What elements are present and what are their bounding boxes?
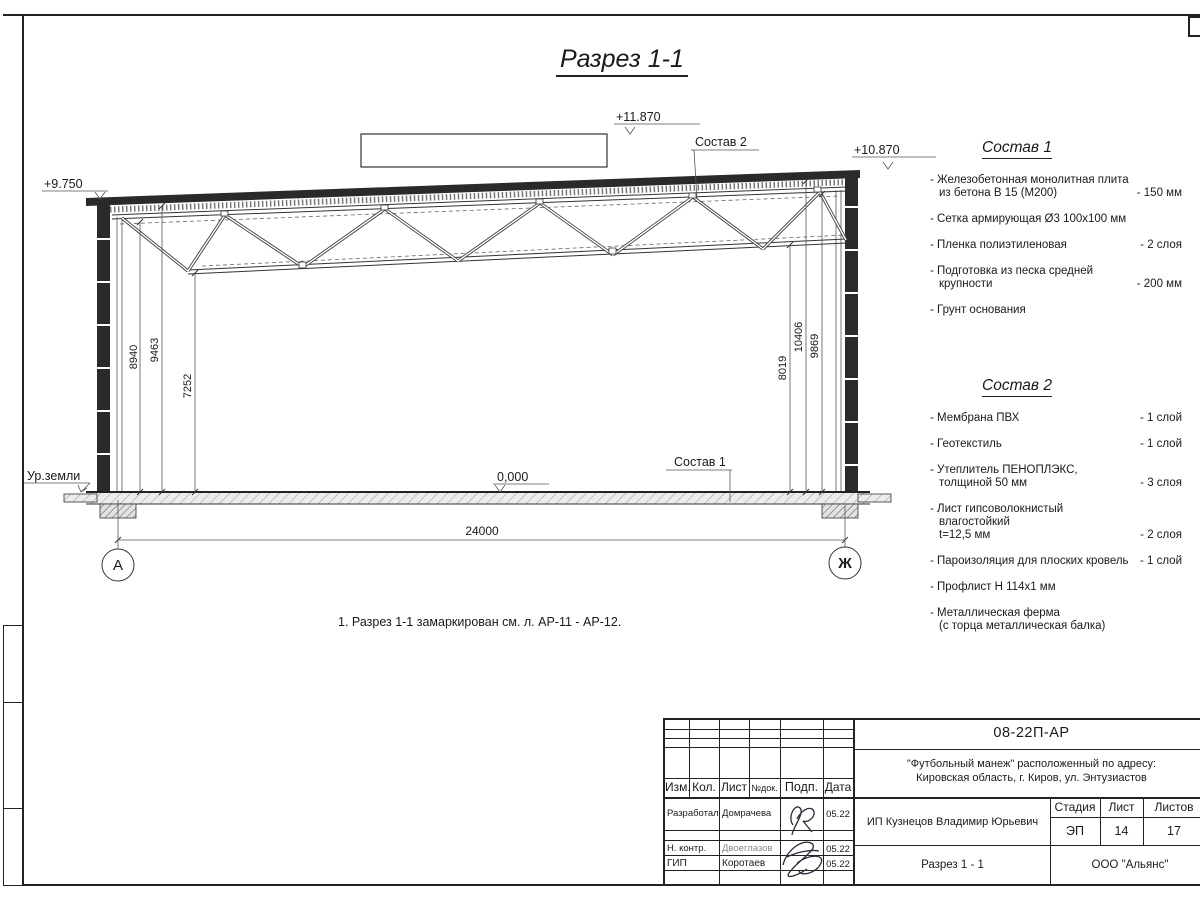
sostav2-item: - Металлическая ферма (с торца металличе… — [930, 607, 1182, 633]
tb-client: ИП Кузнецов Владимир Юрьевич — [855, 798, 1050, 845]
ground-level: Ур.земли — [24, 469, 90, 492]
tb-sheets-value: 17 — [1143, 824, 1200, 838]
tb-company: ООО "Альянс" — [1050, 846, 1200, 883]
tb-col-ndok: №док. — [749, 783, 780, 793]
tb-sheets-label: Листов — [1143, 800, 1200, 814]
drawing-note: 1. Разрез 1-1 замаркирован см. л. АР-11 … — [338, 615, 621, 629]
callout-sostav2: Состав 2 — [695, 135, 747, 149]
tb-project-line1: "Футбольный манеж" расположенный по адре… — [853, 758, 1200, 770]
sostav2-item: - Геотекстиль- 1 слой — [930, 438, 1182, 451]
sostav1-item: - Подготовка из песка средней крупности-… — [930, 265, 1182, 291]
sostav2-item: - Лист гипсоволокнистый влагостойкий t=1… — [930, 503, 1182, 542]
elev-10870: +10.870 — [854, 143, 900, 157]
elev-9750: +9.750 — [44, 177, 83, 191]
elev-0000: 0,000 — [497, 470, 528, 484]
walls — [97, 172, 858, 504]
drawing-sheet: Разрез 1-1 — [0, 0, 1200, 900]
tb-stage-value: ЭП — [1050, 824, 1100, 838]
sostav1-title: Состав 1 — [982, 139, 1052, 159]
sostav1-block: Состав 1 - Железобетонная монолитная пли… — [930, 139, 1182, 317]
signature-gip — [775, 833, 833, 887]
tb-role-razrabotal: Разработал — [667, 808, 719, 819]
sostav2-block: Состав 2 - Мембрана ПВХ- 1 слой - Геотек… — [930, 377, 1182, 633]
rooftop-unit — [361, 134, 607, 167]
axis-a: А — [113, 557, 123, 574]
tb-role-nkontr: Н. контр. — [667, 843, 719, 854]
tb-sheet-title: Разрез 1 - 1 — [855, 846, 1050, 883]
tb-col-kol: Кол. — [689, 780, 719, 794]
tb-col-podp: Подп. — [780, 780, 823, 794]
tb-name-gip: Коротаев — [722, 858, 780, 869]
span-dimension: 24000 — [115, 524, 848, 543]
sostav2-item: - Профлист Н 114х1 мм — [930, 581, 1182, 594]
dim-7252: 7252 — [182, 374, 194, 398]
dimension-lines: 8940 9463 7252 8019 10406 9869 — [128, 178, 825, 495]
sostav1-item: - Пленка полиэтиленовая- 2 слоя — [930, 239, 1182, 252]
sostav1-item: - Сетка армирующая Ø3 100x100 мм — [930, 213, 1182, 226]
tb-stage-label: Стадия — [1050, 800, 1100, 814]
dim-24000: 24000 — [465, 524, 499, 538]
axes: А Ж — [102, 500, 861, 581]
tb-col-list: Лист — [719, 780, 749, 794]
tb-col-izm: Изм. — [665, 780, 689, 794]
tb-sheet-value: 14 — [1100, 824, 1143, 838]
tb-name-nkontr: Двоеглазов — [722, 843, 780, 854]
sostav2-title: Состав 2 — [982, 377, 1052, 397]
title-block: Изм. Кол. Лист №док. Подп. Дата Разработ… — [663, 718, 1200, 886]
sostav2-item: - Мембрана ПВХ- 1 слой — [930, 412, 1182, 425]
elev-11870: +11.870 — [616, 110, 661, 124]
ground-label: Ур.земли — [27, 469, 80, 483]
tb-project-line2: Кировская область, г. Киров, ул. Энтузиа… — [853, 772, 1200, 784]
sostav2-item: - Утеплитель ПЕНОПЛЭКС, толщиной 50 мм- … — [930, 464, 1182, 490]
dim-9463: 9463 — [149, 338, 161, 362]
dim-8940: 8940 — [128, 345, 140, 369]
sostav1-item: - Грунт основания — [930, 304, 1182, 317]
roof — [86, 170, 860, 224]
dim-10406: 10406 — [793, 322, 805, 353]
sostav1-item: - Железобетонная монолитная плита из бет… — [930, 174, 1182, 200]
axis-zh: Ж — [837, 555, 852, 572]
floor-slab — [64, 492, 891, 518]
tb-role-gip: ГИП — [667, 858, 719, 869]
tb-date-razrabotal: 05.22 — [823, 809, 853, 820]
tb-name-razrabotal: Домрачева — [722, 808, 780, 819]
callouts: Состав 2 Состав 1 — [666, 135, 759, 502]
tb-col-data: Дата — [823, 780, 853, 794]
tb-sheet-label: Лист — [1100, 800, 1143, 814]
dim-9869: 9869 — [809, 334, 821, 358]
tb-doc-code: 08-22П-АР — [853, 725, 1200, 741]
callout-sostav1: Состав 1 — [674, 455, 726, 469]
dim-8019: 8019 — [777, 356, 789, 380]
sostav2-item: - Пароизоляция для плоских кровель- 1 сл… — [930, 555, 1182, 568]
